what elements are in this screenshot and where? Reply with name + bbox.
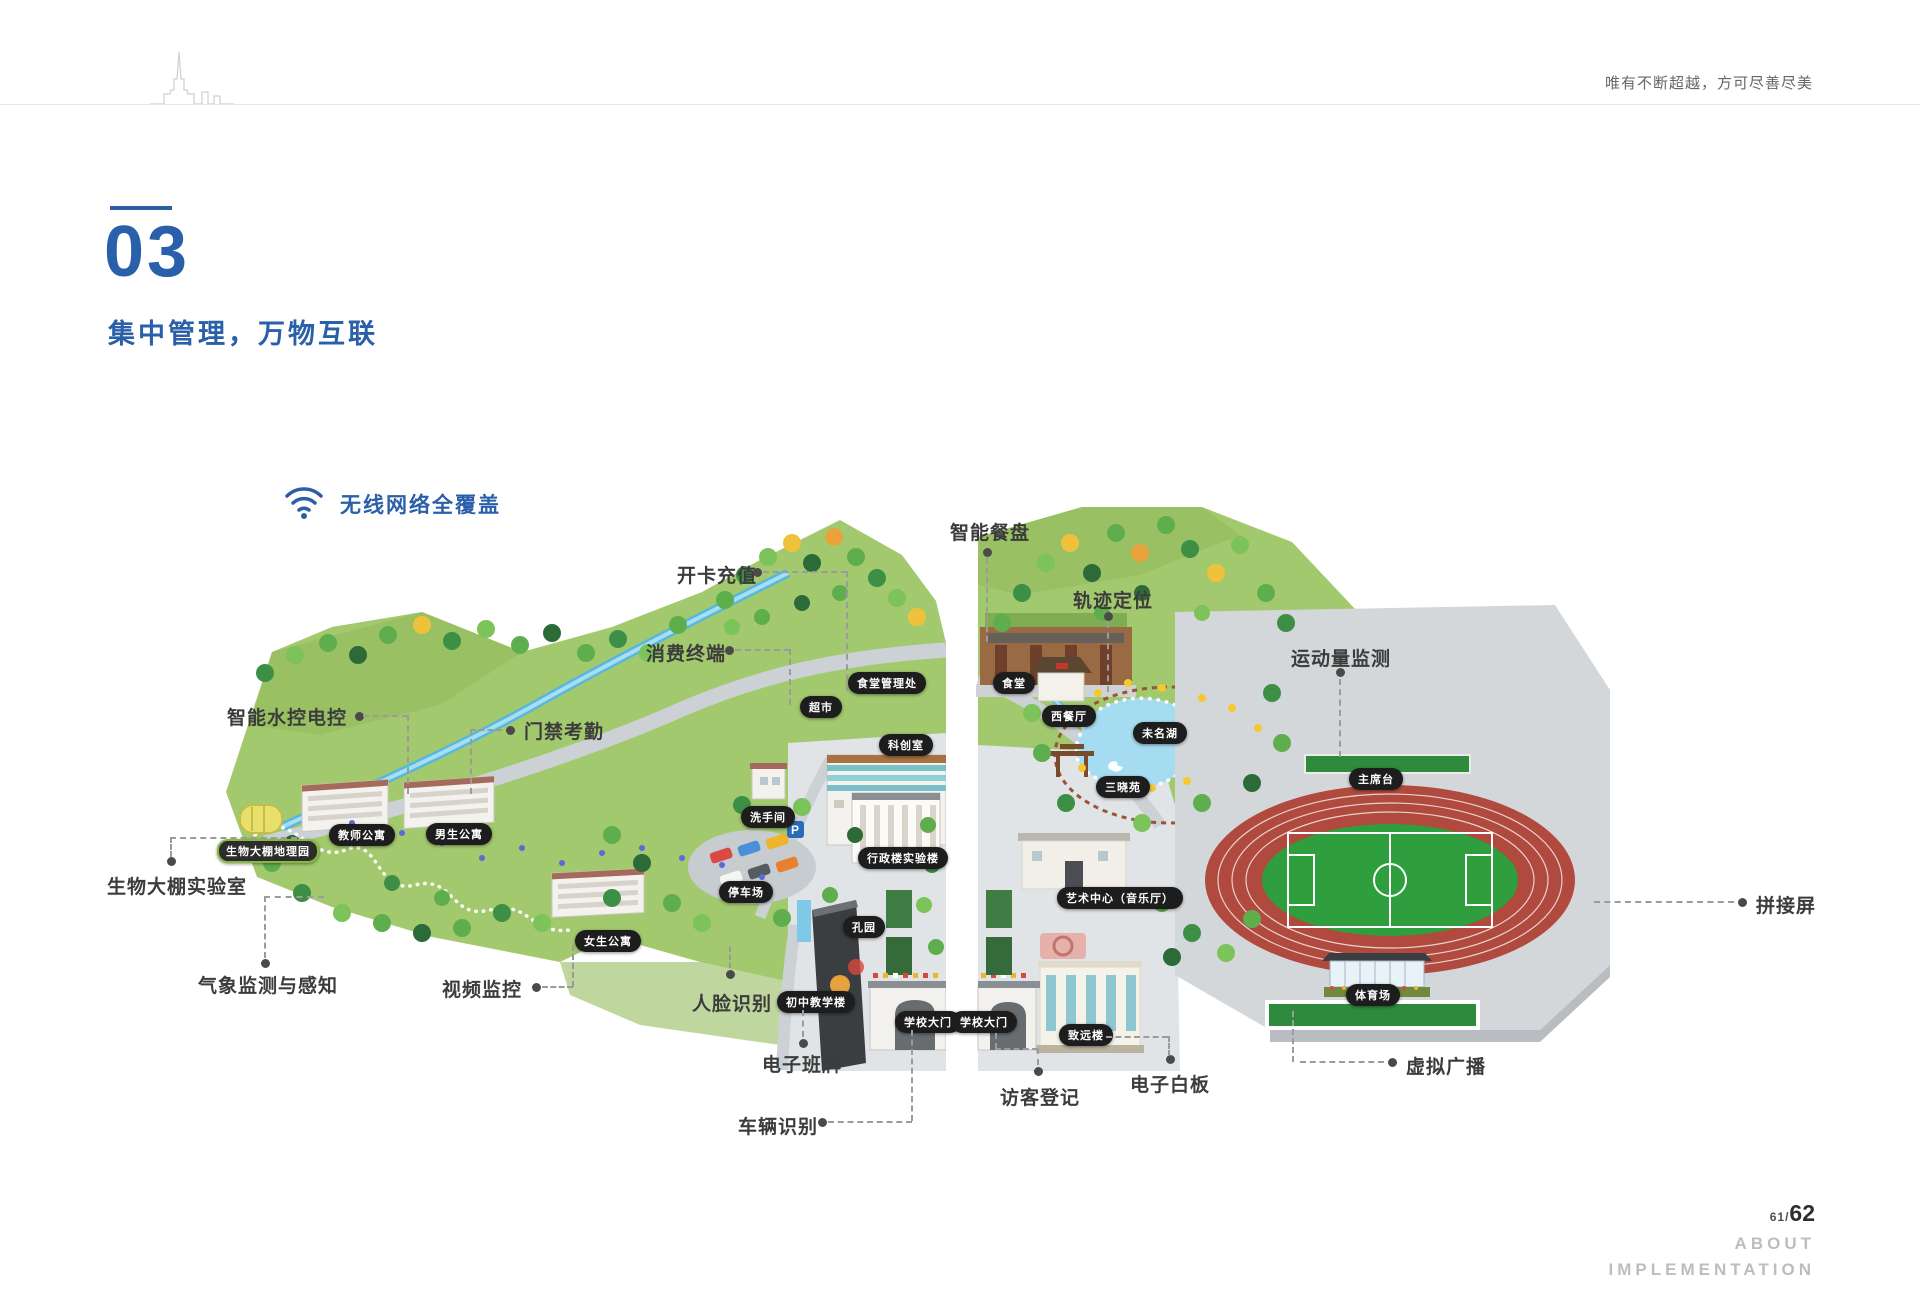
callout-line bbox=[729, 946, 731, 968]
callout-dot bbox=[1336, 668, 1345, 677]
page-number-total: 62 bbox=[1789, 1200, 1815, 1226]
callout-video-wall: 拼接屏 bbox=[1756, 891, 1816, 918]
callout-virtual-broadcast: 虚拟广播 bbox=[1406, 1052, 1486, 1079]
callout-line bbox=[264, 896, 266, 958]
callout-line bbox=[1594, 901, 1734, 903]
callout-dot bbox=[818, 1118, 827, 1127]
callout-biology-greenhouse-lab: 生物大棚实验室 bbox=[107, 872, 247, 899]
callout-e-class-sign: 电子班牌 bbox=[762, 1050, 842, 1077]
callout-dot bbox=[506, 726, 515, 735]
art-center-building bbox=[1018, 833, 1130, 889]
map-badge-school-gate-right: 学校大门 bbox=[951, 1011, 1017, 1033]
callout-line bbox=[1300, 1061, 1384, 1063]
map-split-band bbox=[946, 505, 978, 1165]
callout-line bbox=[1106, 1036, 1168, 1038]
section-number: 03 bbox=[104, 216, 190, 288]
section-rule bbox=[110, 206, 172, 210]
map-badge-canteen: 食堂 bbox=[993, 672, 1035, 694]
map-badge-tech-innovation-room: 科创室 bbox=[879, 734, 933, 756]
callout-dot bbox=[1034, 1067, 1043, 1076]
callout-line bbox=[1339, 679, 1341, 757]
callout-line bbox=[363, 715, 408, 717]
callout-line bbox=[1107, 622, 1109, 692]
section-title: 集中管理，万物互联 bbox=[108, 312, 378, 351]
callout-dot bbox=[799, 1039, 808, 1048]
callout-dot bbox=[1104, 612, 1113, 621]
callout-dot bbox=[1166, 1055, 1175, 1064]
map-badge-restroom: 洗手间 bbox=[741, 806, 795, 828]
map-badge-junior-high-building: 初中教学楼 bbox=[777, 991, 855, 1013]
callout-dot bbox=[1388, 1058, 1397, 1067]
callout-dot bbox=[1738, 898, 1747, 907]
callout-line bbox=[789, 649, 791, 705]
footer-section-name: ABOUT IMPLEMENTATION bbox=[1609, 1231, 1815, 1282]
map-badge-zhiyuan-building: 致远楼 bbox=[1059, 1024, 1113, 1046]
map-badge-sanxiao-garden: 三晓苑 bbox=[1096, 776, 1150, 798]
plaza-mandala bbox=[1040, 933, 1086, 959]
callout-line bbox=[264, 896, 324, 898]
callout-line bbox=[846, 571, 848, 691]
boys-dorm-building bbox=[404, 776, 494, 828]
callout-e-whiteboard: 电子白板 bbox=[1130, 1070, 1210, 1097]
map-badge-boys-dorm: 男生公寓 bbox=[426, 823, 492, 845]
page-number: 61/62 bbox=[1609, 1200, 1815, 1227]
footer-about-line2: IMPLEMENTATION bbox=[1609, 1257, 1815, 1283]
callout-access-control-attendance: 门禁考勤 bbox=[524, 717, 604, 744]
callout-line bbox=[735, 649, 790, 651]
callout-video-surveillance: 视频监控 bbox=[442, 975, 522, 1002]
callout-line bbox=[407, 715, 409, 794]
callout-line bbox=[170, 837, 172, 857]
callout-line bbox=[995, 1048, 1038, 1050]
page-footer: 61/62 ABOUT IMPLEMENTATION bbox=[1609, 1200, 1815, 1282]
callout-dot bbox=[532, 983, 541, 992]
callout-line bbox=[1037, 1048, 1039, 1065]
running-track bbox=[1205, 785, 1575, 975]
callout-line bbox=[802, 1010, 804, 1037]
map-badge-confucius-garden: 孔园 bbox=[843, 916, 885, 938]
callout-line bbox=[470, 729, 472, 794]
callout-line bbox=[828, 1121, 912, 1123]
footer-about-line1: ABOUT bbox=[1609, 1231, 1815, 1257]
callout-smart-meal-tray: 智能餐盘 bbox=[950, 518, 1030, 545]
right-campus bbox=[976, 507, 1610, 1071]
callout-line bbox=[1292, 1011, 1294, 1062]
restroom-building bbox=[750, 763, 787, 799]
callout-dot bbox=[726, 970, 735, 979]
map-badge-parking-lot: 停车场 bbox=[719, 881, 773, 903]
callout-face-recognition: 人脸识别 bbox=[692, 989, 772, 1016]
callout-vehicle-recognition: 车辆识别 bbox=[738, 1112, 818, 1139]
callout-card-issue-recharge: 开卡充值 bbox=[677, 561, 757, 588]
callout-dot bbox=[167, 857, 176, 866]
header-tagline: 唯有不断超越，方可尽善尽美 bbox=[1605, 72, 1813, 93]
greenhouse-building bbox=[240, 805, 282, 833]
parking-sign-icon: P bbox=[791, 823, 799, 837]
pool bbox=[797, 900, 811, 942]
callout-dot bbox=[261, 959, 270, 968]
map-badge-stadium: 体育场 bbox=[1346, 984, 1400, 1006]
brochure-page: 唯有不断超越，方可尽善尽美 03 集中管理，万物互联 无线网络全覆盖 bbox=[0, 0, 1920, 1312]
callout-line bbox=[572, 945, 574, 987]
map-badge-teachers-dorm: 教师公寓 bbox=[329, 824, 395, 846]
callout-smart-water-electric-control: 智能水控电控 bbox=[227, 703, 347, 730]
callout-dot bbox=[753, 568, 762, 577]
map-badge-art-center: 艺术中心（音乐厅） bbox=[1057, 887, 1183, 909]
callout-exercise-monitoring: 运动量监测 bbox=[1291, 644, 1391, 671]
map-badge-supermarket: 超市 bbox=[800, 696, 842, 718]
callout-line bbox=[1168, 1036, 1170, 1056]
western-restaurant-building bbox=[1030, 657, 1092, 701]
header-divider bbox=[0, 104, 1920, 105]
map-badge-western-restaurant: 西餐厅 bbox=[1042, 705, 1096, 727]
callout-trajectory-tracking: 轨迹定位 bbox=[1073, 586, 1153, 613]
map-badge-rostrum: 主席台 bbox=[1349, 768, 1403, 790]
map-badge-admin-lab-building: 行政楼实验楼 bbox=[858, 847, 948, 869]
callout-dot bbox=[725, 646, 734, 655]
callout-visitor-registration: 访客登记 bbox=[1000, 1083, 1080, 1110]
callout-line bbox=[470, 729, 502, 731]
page-number-current: 61 bbox=[1770, 1210, 1785, 1224]
callout-line bbox=[170, 837, 297, 839]
callout-line bbox=[986, 558, 988, 642]
callout-line bbox=[911, 1030, 913, 1121]
map-badge-bio-greenhouse-geo-garden: 生物大棚地理园 bbox=[217, 839, 319, 863]
callout-line bbox=[995, 1033, 997, 1049]
callout-weather-monitoring-sensing: 气象监测与感知 bbox=[198, 971, 338, 998]
map-badge-canteen-office: 食堂管理处 bbox=[848, 672, 926, 694]
map-badge-girls-dorm: 女生公寓 bbox=[575, 930, 641, 952]
callout-line bbox=[763, 571, 847, 573]
callout-line bbox=[542, 986, 573, 988]
callout-payment-terminal: 消费终端 bbox=[646, 639, 726, 666]
map-badge-weiming-lake: 未名湖 bbox=[1133, 722, 1187, 744]
callout-dot bbox=[983, 548, 992, 557]
girls-dorm-building bbox=[552, 869, 644, 918]
city-skyline-logo bbox=[150, 48, 234, 105]
